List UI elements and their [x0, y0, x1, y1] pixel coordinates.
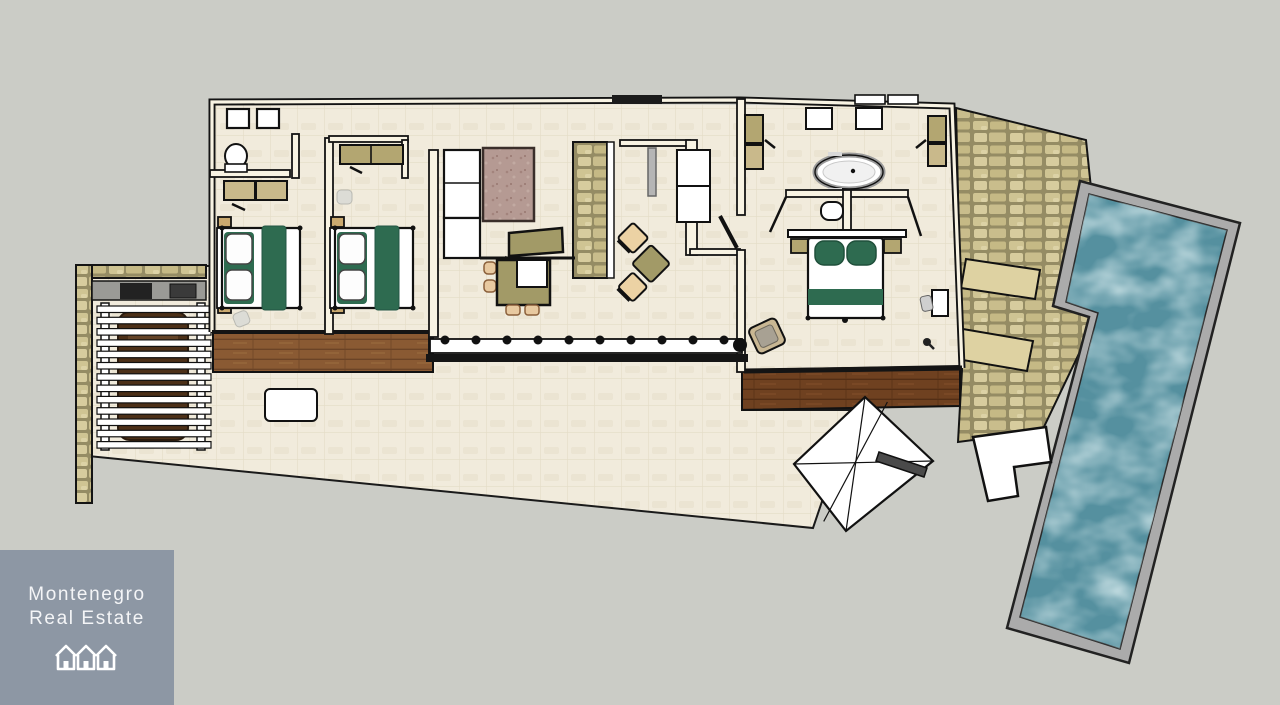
pillow	[815, 241, 844, 265]
gate-post	[120, 283, 152, 299]
gate-post	[170, 284, 196, 298]
vanity-cabinet	[224, 181, 255, 200]
desk-chair	[920, 295, 934, 312]
pillow	[226, 270, 252, 300]
wood-deck-left	[213, 332, 433, 372]
sink	[227, 109, 249, 128]
wardrobe	[745, 115, 763, 143]
stool	[484, 262, 496, 274]
curtain-bunch	[733, 338, 747, 352]
carport-stone-strip-left	[76, 265, 92, 503]
door-track	[426, 354, 748, 362]
stone-feature-wall	[573, 142, 607, 278]
sofa-chaise	[444, 218, 480, 258]
pillow	[339, 270, 365, 300]
stool	[525, 305, 539, 315]
stool	[484, 280, 496, 292]
tv-panel	[648, 148, 656, 196]
kitchen-island	[517, 260, 547, 287]
entrance-door	[612, 95, 662, 104]
nightstand	[791, 239, 808, 253]
houses-icon	[54, 642, 120, 672]
pouf	[337, 190, 352, 204]
wardrobe	[928, 144, 946, 166]
headboard	[788, 230, 906, 237]
door-mat	[265, 389, 317, 421]
brand-line2: Real Estate	[29, 608, 145, 630]
pillow	[339, 234, 365, 264]
master-bathtub	[815, 152, 883, 192]
wardrobe	[745, 145, 763, 169]
nightstand	[884, 239, 901, 253]
nightstand	[218, 217, 231, 227]
floor-plan-canvas: Montenegro Real Estate	[0, 0, 1280, 705]
bed-runner	[262, 226, 286, 310]
nightstand	[331, 217, 344, 227]
sofa	[444, 150, 480, 218]
window	[855, 95, 885, 104]
toilet	[821, 202, 843, 220]
floor-plan-drawing	[0, 0, 1280, 705]
vanity-cabinet	[256, 181, 287, 200]
pillow	[226, 234, 252, 264]
brand-watermark: Montenegro Real Estate	[0, 550, 174, 705]
desk	[932, 290, 948, 316]
wardrobe	[928, 116, 946, 142]
console-table	[509, 228, 563, 256]
rug	[483, 148, 534, 221]
hall-door-panels	[677, 150, 710, 222]
skylight	[806, 108, 832, 129]
bed-runner	[375, 226, 399, 310]
skylight	[856, 108, 882, 129]
bed-runner	[808, 289, 883, 305]
pillow	[847, 241, 876, 265]
carport-stone-strip-top	[76, 265, 206, 278]
brand-line1: Montenegro	[28, 584, 145, 606]
stool	[506, 305, 520, 315]
sliding-glass-door	[426, 336, 748, 363]
toilet-tank	[225, 164, 247, 172]
window	[888, 95, 918, 104]
sink	[257, 109, 279, 128]
